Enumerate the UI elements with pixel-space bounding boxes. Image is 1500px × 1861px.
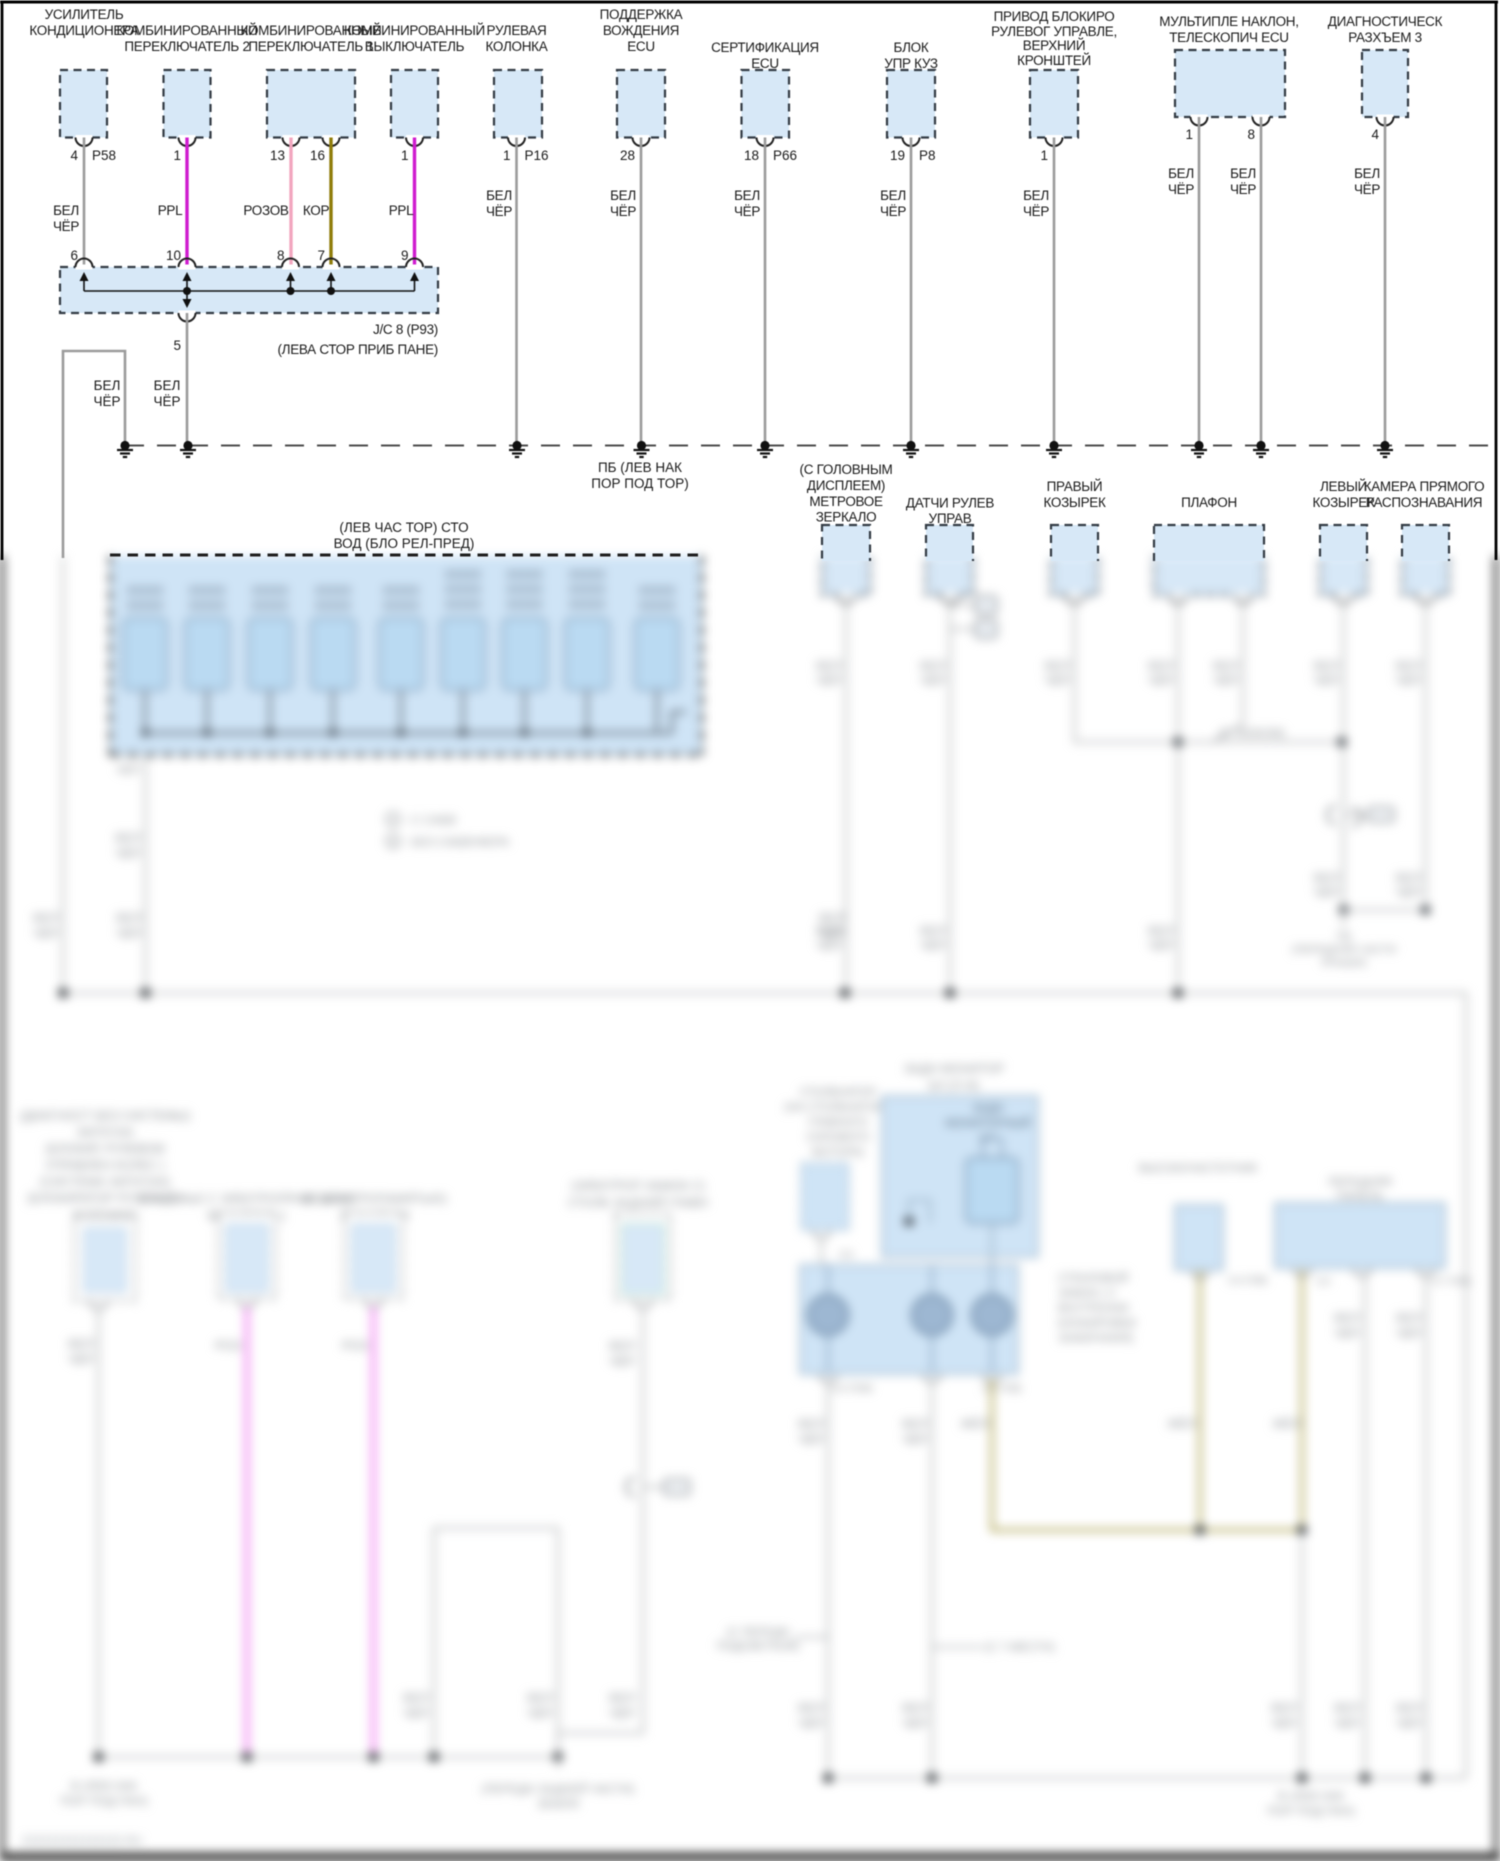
svg-text:1: 1: [503, 148, 511, 163]
svg-text:P16: P16: [525, 148, 549, 163]
svg-text:18: 18: [744, 148, 759, 163]
svg-text:БЕЛ: БЕЛ: [1354, 166, 1380, 181]
svg-text:(С ГОЛОВНЫМ: (С ГОЛОВНЫМ: [800, 462, 893, 477]
svg-text:КОЗЫРЕК: КОЗЫРЕК: [1043, 495, 1106, 510]
svg-text:БЕЛ: БЕЛ: [1168, 166, 1194, 181]
svg-text:ПОДДЕРЖКА: ПОДДЕРЖКА: [600, 7, 683, 22]
svg-text:ПОР ПОД ТОР): ПОР ПОД ТОР): [591, 476, 688, 491]
svg-text:ECU: ECU: [627, 39, 655, 54]
svg-text:КАМЕРА ПРЯМОГО: КАМЕРА ПРЯМОГО: [1364, 479, 1485, 494]
svg-text:БЕЛ: БЕЛ: [734, 188, 760, 203]
svg-text:1: 1: [1040, 148, 1048, 163]
svg-text:9: 9: [401, 248, 409, 263]
svg-text:БЕЛ: БЕЛ: [1023, 188, 1049, 203]
svg-text:КОМБИНИРОВАННЫЙ: КОМБИНИРОВАННЫЙ: [117, 23, 258, 38]
svg-text:БЕЛ: БЕЛ: [1230, 166, 1256, 181]
svg-text:БЕЛ: БЕЛ: [94, 378, 121, 393]
svg-text:ЧЁР: ЧЁР: [1230, 182, 1256, 197]
svg-text:6: 6: [70, 248, 78, 263]
svg-text:КОЛОНКА: КОЛОНКА: [486, 39, 548, 54]
svg-text:19: 19: [890, 148, 905, 163]
svg-text:(ЛЕВА СТОР ПРИБ ПАНЕ): (ЛЕВА СТОР ПРИБ ПАНЕ): [277, 342, 438, 357]
svg-text:КРОНШТЕЙ: КРОНШТЕЙ: [1017, 53, 1091, 68]
svg-text:P66: P66: [773, 148, 797, 163]
svg-text:8: 8: [277, 248, 285, 263]
svg-text:ДИАГНОСТИЧЕСК: ДИАГНОСТИЧЕСК: [1328, 14, 1443, 29]
svg-text:МУЛЬТИПЛЕ НАКЛОН,: МУЛЬТИПЛЕ НАКЛОН,: [1159, 14, 1298, 29]
svg-text:БЕЛ: БЕЛ: [486, 188, 512, 203]
svg-text:4: 4: [1371, 127, 1379, 142]
svg-text:1: 1: [173, 148, 181, 163]
svg-text:ЧЁР: ЧЁР: [486, 204, 512, 219]
svg-text:ПЛАФОН: ПЛАФОН: [1181, 495, 1237, 510]
svg-text:ЧЁР: ЧЁР: [93, 394, 120, 409]
svg-text:ЗЕРКАЛО: ЗЕРКАЛО: [816, 510, 877, 525]
svg-text:PPL: PPL: [158, 203, 183, 218]
svg-text:ЧЁР: ЧЁР: [734, 204, 760, 219]
svg-text:ПРИВОД БЛОКИРО: ПРИВОД БЛОКИРО: [994, 9, 1115, 24]
svg-text:ПЕРЕКЛЮЧАТЕЛЬ 1: ПЕРЕКЛЮЧАТЕЛЬ 1: [248, 39, 373, 54]
svg-text:ЧЁР: ЧЁР: [610, 204, 636, 219]
svg-text:ЛЕВЫЙ: ЛЕВЫЙ: [1320, 479, 1367, 494]
svg-text:МЕТРОВОЕ: МЕТРОВОЕ: [809, 494, 883, 509]
svg-text:ЧЁР: ЧЁР: [880, 204, 906, 219]
svg-text:16: 16: [310, 148, 325, 163]
svg-text:БЛОК: БЛОК: [894, 40, 929, 55]
svg-text:13: 13: [270, 148, 285, 163]
svg-text:ТЕЛЕСКОПИЧ ECU: ТЕЛЕСКОПИЧ ECU: [1169, 30, 1289, 45]
svg-text:РОЗОВ: РОЗОВ: [243, 203, 289, 218]
svg-text:ЧЁР: ЧЁР: [1168, 182, 1194, 197]
svg-text:ЧЁР: ЧЁР: [1354, 182, 1380, 197]
svg-text:ДАТЧИ РУЛЕВ: ДАТЧИ РУЛЕВ: [906, 496, 994, 511]
svg-text:ЧЁР: ЧЁР: [53, 219, 79, 234]
svg-text:(ЛЕВ ЧАС ТОР) СТО: (ЛЕВ ЧАС ТОР) СТО: [339, 520, 468, 535]
svg-text:8: 8: [1247, 127, 1255, 142]
svg-text:ДИСПЛЕЕМ): ДИСПЛЕЕМ): [807, 478, 885, 493]
svg-text:БЕЛ: БЕЛ: [610, 188, 636, 203]
svg-text:P58: P58: [92, 148, 116, 163]
svg-text:10: 10: [166, 248, 181, 263]
svg-text:КОМБИНИРОВАННЫЙ: КОМБИНИРОВАННЫЙ: [344, 23, 485, 38]
svg-text:7: 7: [317, 248, 325, 263]
svg-text:P8: P8: [919, 148, 936, 163]
svg-text:КОР: КОР: [303, 203, 330, 218]
svg-text:1: 1: [401, 148, 409, 163]
svg-text:СЕРТИФИКАЦИЯ: СЕРТИФИКАЦИЯ: [711, 40, 819, 55]
svg-text:ЧЁР: ЧЁР: [1023, 204, 1049, 219]
svg-text:ВЕРХНИЙ: ВЕРХНИЙ: [1023, 38, 1085, 53]
svg-text:J/C 8 (P93): J/C 8 (P93): [373, 322, 438, 337]
svg-text:ЧЁР: ЧЁР: [153, 394, 180, 409]
svg-text:5: 5: [173, 338, 181, 353]
svg-text:БЕЛ: БЕЛ: [53, 203, 79, 218]
svg-text:РАСПОЗНАВАНИЯ: РАСПОЗНАВАНИЯ: [1366, 495, 1483, 510]
svg-text:28: 28: [620, 148, 635, 163]
svg-text:РУЛЕВОГ УПРАВЛЕ,: РУЛЕВОГ УПРАВЛЕ,: [991, 24, 1117, 39]
svg-text:УПР КУЗ: УПР КУЗ: [884, 56, 938, 71]
svg-text:ВОД (БЛО РЕЛ-ПРЕД): ВОД (БЛО РЕЛ-ПРЕД): [334, 536, 475, 551]
svg-text:БЕЛ: БЕЛ: [880, 188, 906, 203]
svg-text:4: 4: [70, 148, 78, 163]
svg-text:ПБ (ЛЕВ НАК: ПБ (ЛЕВ НАК: [598, 460, 682, 475]
svg-text:РУЛЕВАЯ: РУЛЕВАЯ: [487, 23, 547, 38]
svg-text:PPL: PPL: [389, 203, 414, 218]
svg-text:БЕЛ: БЕЛ: [154, 378, 181, 393]
svg-text:1: 1: [1185, 127, 1193, 142]
svg-text:РАЗХЪЕМ 3: РАЗХЪЕМ 3: [1348, 30, 1422, 45]
svg-text:УПРАВ: УПРАВ: [929, 511, 972, 526]
svg-text:УСИЛИТЕЛЬ: УСИЛИТЕЛЬ: [45, 7, 124, 22]
svg-text:ECU: ECU: [751, 56, 779, 71]
svg-text:ВЫКЛЮЧАТЕЛЬ: ВЫКЛЮЧАТЕЛЬ: [365, 39, 465, 54]
svg-text:ПРАВЫЙ: ПРАВЫЙ: [1047, 479, 1103, 494]
svg-text:ПЕРЕКЛЮЧАТЕЛЬ 2: ПЕРЕКЛЮЧАТЕЛЬ 2: [124, 39, 249, 54]
svg-text:ВОЖДЕНИЯ: ВОЖДЕНИЯ: [603, 23, 679, 38]
